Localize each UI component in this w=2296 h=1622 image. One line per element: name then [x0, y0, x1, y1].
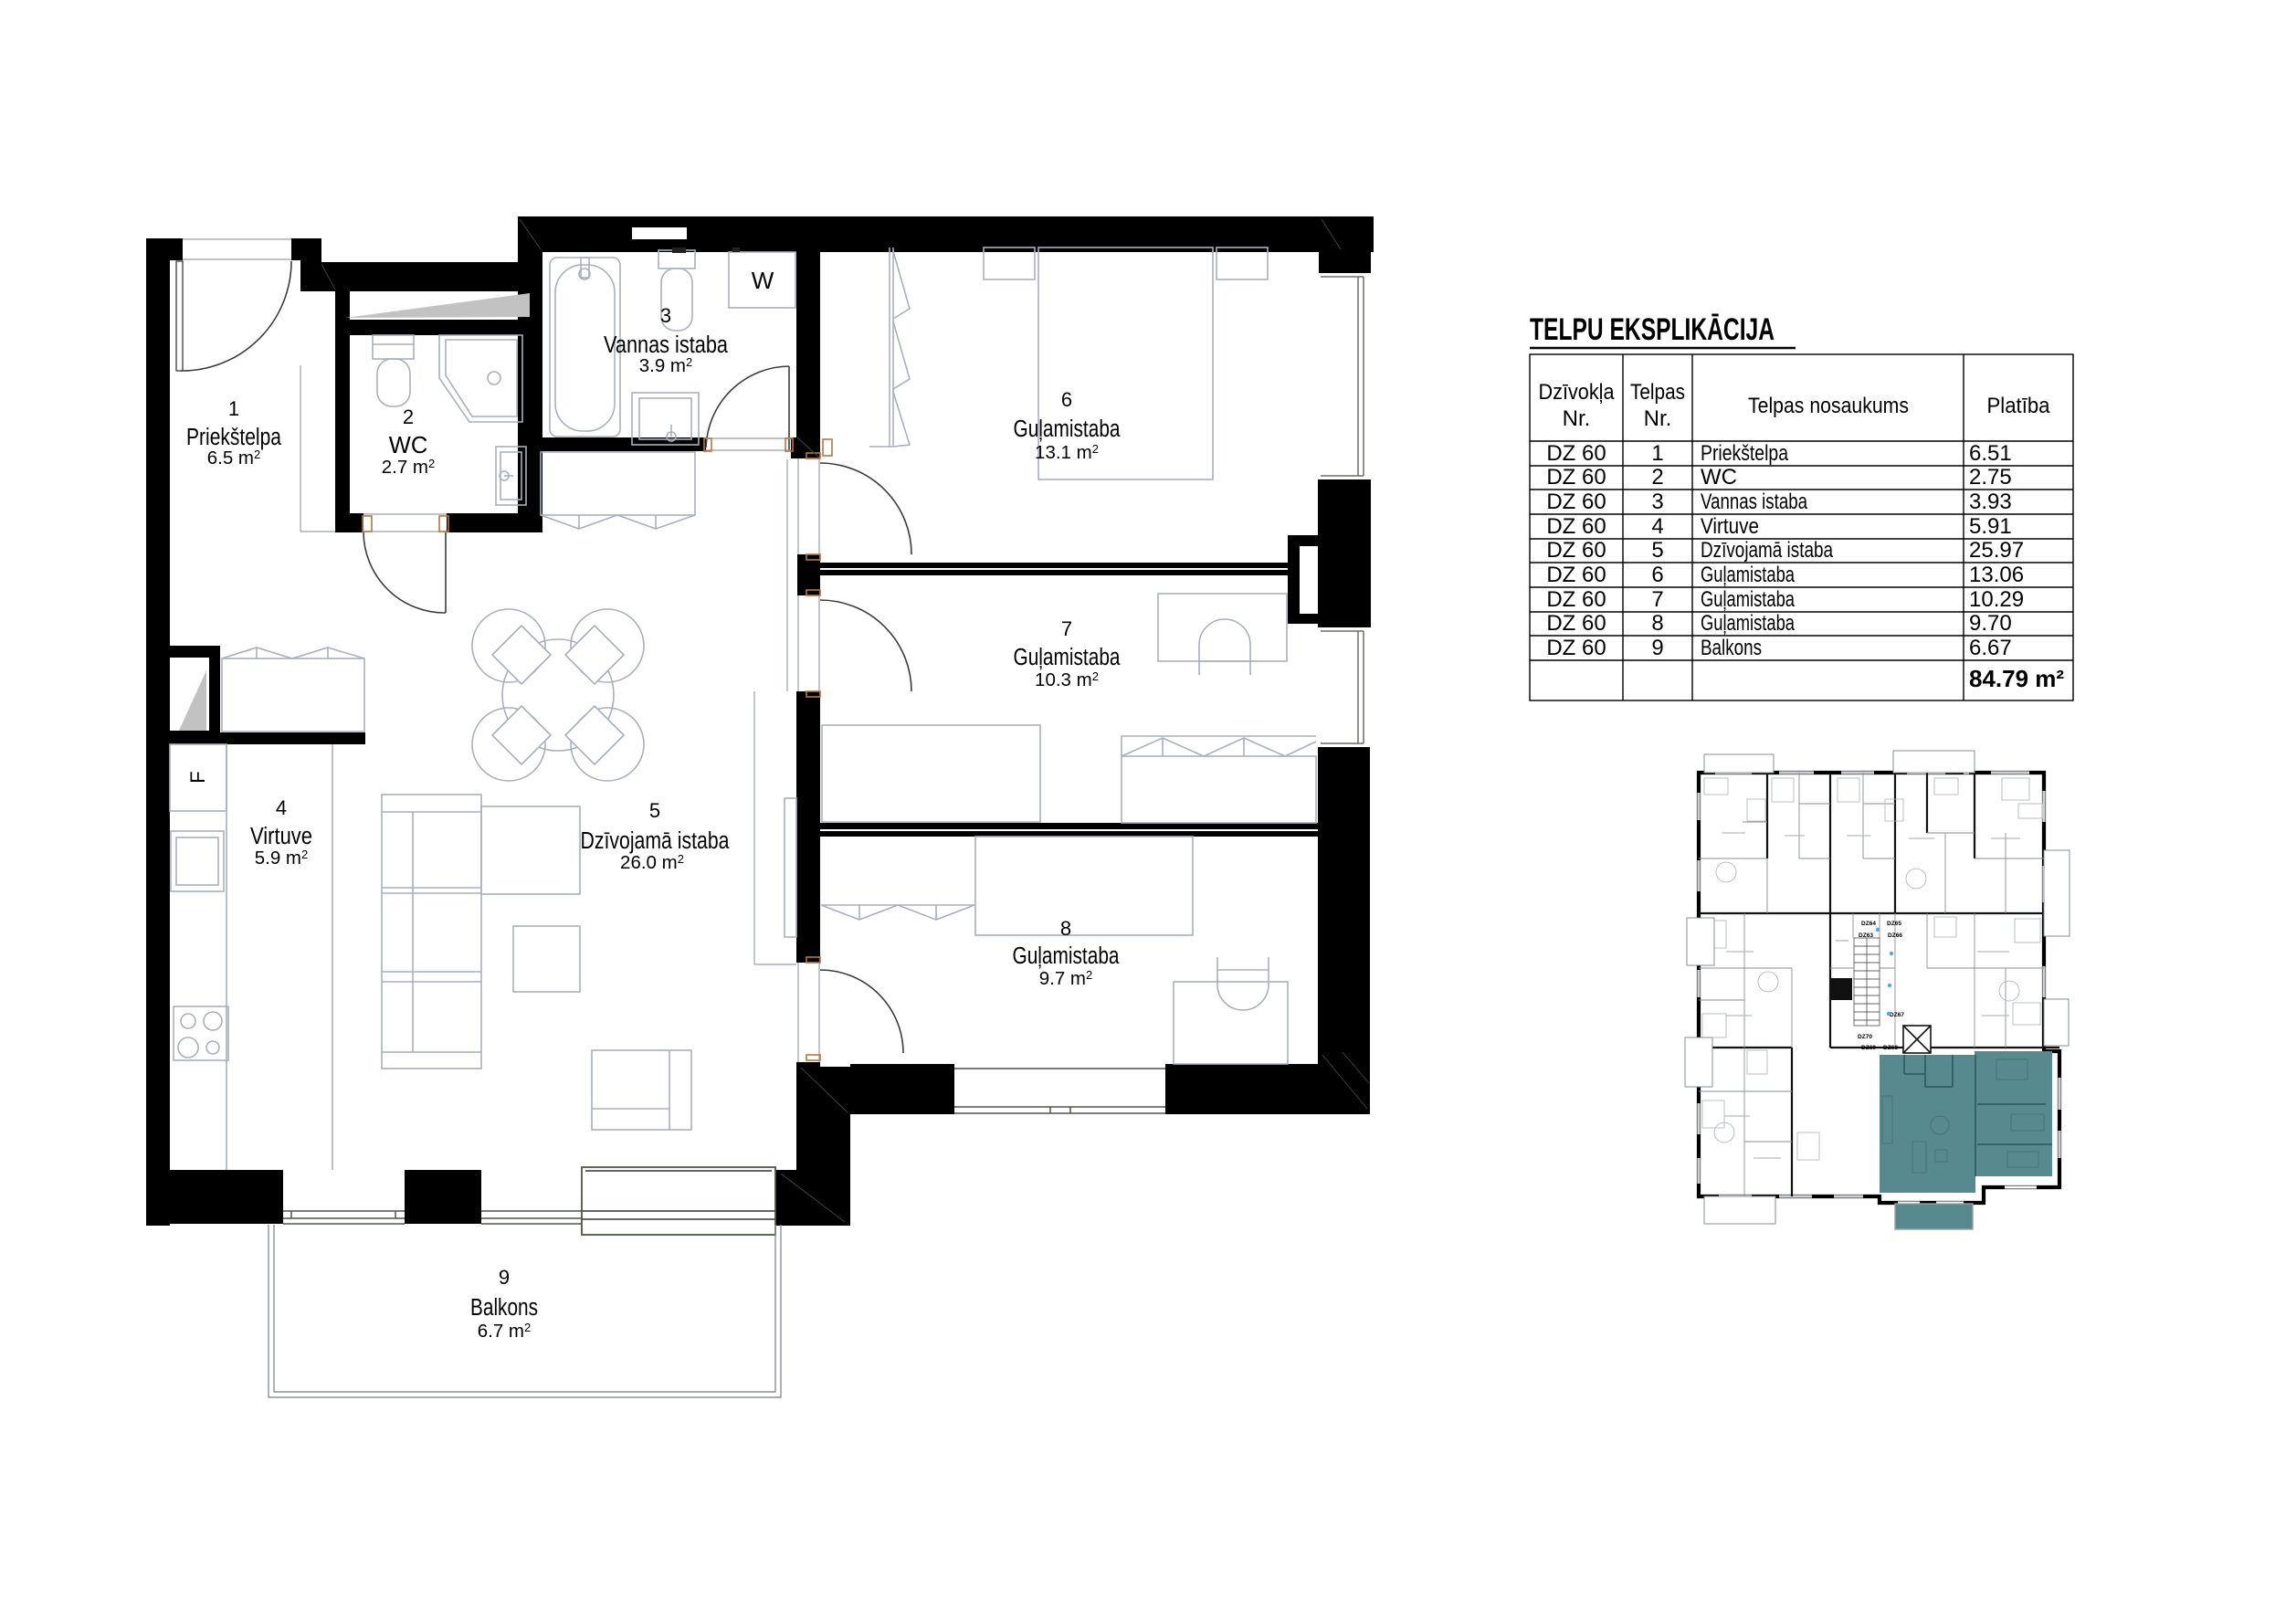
svg-text:3.93: 3.93: [1969, 490, 2012, 514]
svg-text:6.5 m2: 6.5 m2: [207, 448, 261, 469]
svg-text:DZ67: DZ67: [1890, 1012, 1904, 1018]
svg-text:6.67: 6.67: [1969, 636, 2012, 660]
svg-text:WC: WC: [1701, 465, 1737, 490]
svg-text:Priekštelpa: Priekštelpa: [1701, 441, 1789, 466]
svg-text:Guļamistaba: Guļamistaba: [1701, 587, 1795, 612]
svg-text:3.9 m2: 3.9 m2: [639, 355, 693, 376]
svg-text:3: 3: [1651, 490, 1663, 514]
svg-text:Dzīvokļa: Dzīvokļa: [1539, 380, 1616, 405]
svg-text:DZ 60: DZ 60: [1546, 490, 1606, 514]
svg-text:10.29: 10.29: [1969, 587, 2024, 612]
svg-text:DZ65: DZ65: [1887, 921, 1901, 927]
svg-text:25.97: 25.97: [1969, 538, 2024, 563]
svg-text:7: 7: [1061, 617, 1072, 640]
svg-text:6.51: 6.51: [1969, 441, 2012, 466]
svg-text:Vannas istaba: Vannas istaba: [1701, 490, 1808, 514]
svg-text:9.70: 9.70: [1969, 611, 2012, 636]
svg-text:Dzīvojamā istaba: Dzīvojamā istaba: [581, 828, 731, 854]
svg-text:DZ 60: DZ 60: [1546, 636, 1606, 660]
svg-text:5: 5: [649, 799, 660, 822]
svg-text:Priekštelpa: Priekštelpa: [186, 425, 282, 450]
svg-text:DZ64: DZ64: [1861, 921, 1876, 927]
svg-text:8: 8: [1651, 611, 1663, 636]
svg-text:Platība: Platība: [1987, 394, 2051, 418]
svg-text:2: 2: [1651, 465, 1663, 490]
svg-text:Nr.: Nr.: [1563, 406, 1591, 431]
svg-text:7: 7: [1651, 587, 1663, 612]
svg-text:Guļamistaba: Guļamistaba: [1014, 645, 1122, 670]
svg-text:Guļamistaba: Guļamistaba: [1701, 611, 1795, 636]
svg-text:6: 6: [1061, 388, 1072, 411]
svg-text:9: 9: [1651, 636, 1663, 660]
svg-text:10.3 m2: 10.3 m2: [1035, 669, 1099, 690]
svg-text:DZ63: DZ63: [1859, 932, 1873, 939]
svg-text:9.7 m2: 9.7 m2: [1039, 968, 1093, 989]
svg-text:5: 5: [1651, 538, 1663, 563]
svg-text:Telpas: Telpas: [1630, 380, 1685, 405]
svg-text:DZ68: DZ68: [1883, 1045, 1898, 1051]
svg-text:DZ 60: DZ 60: [1546, 465, 1606, 490]
svg-text:26.0 m2: 26.0 m2: [620, 852, 684, 873]
svg-text:DZ 60: DZ 60: [1546, 563, 1606, 587]
svg-text:2.75: 2.75: [1969, 465, 2012, 490]
svg-text:1: 1: [1651, 441, 1663, 466]
svg-text:Balkons: Balkons: [1701, 636, 1762, 660]
svg-text:13.06: 13.06: [1969, 563, 2024, 587]
svg-text:84.79 m²: 84.79 m²: [1969, 665, 2064, 692]
svg-text:Guļamistaba: Guļamistaba: [1013, 943, 1121, 969]
svg-text:WC: WC: [389, 433, 427, 458]
svg-text:W: W: [752, 267, 774, 294]
svg-text:5.91: 5.91: [1969, 514, 2012, 539]
svg-text:DZ 60: DZ 60: [1546, 538, 1606, 563]
svg-text:Virtuve: Virtuve: [1701, 514, 1759, 539]
svg-text:Telpas nosaukums: Telpas nosaukums: [1748, 394, 1909, 418]
svg-text:Virtuve: Virtuve: [250, 824, 312, 849]
svg-text:DZ70: DZ70: [1858, 1034, 1872, 1040]
svg-text:1: 1: [228, 397, 239, 420]
svg-text:Vannas istaba: Vannas istaba: [604, 332, 729, 358]
svg-text:F: F: [186, 771, 209, 783]
svg-text:5.9 m2: 5.9 m2: [255, 848, 309, 869]
svg-text:3: 3: [660, 304, 671, 327]
svg-text:2.7 m2: 2.7 m2: [382, 457, 436, 478]
svg-text:Guļamistaba: Guļamistaba: [1701, 563, 1795, 587]
svg-text:9: 9: [499, 1266, 510, 1289]
svg-text:DZ 60: DZ 60: [1546, 514, 1606, 539]
svg-text:2: 2: [403, 405, 414, 428]
svg-text:DZ 60: DZ 60: [1546, 441, 1606, 466]
svg-text:Balkons: Balkons: [470, 1295, 538, 1321]
svg-text:6.7 m2: 6.7 m2: [478, 1321, 532, 1342]
svg-text:Nr.: Nr.: [1644, 406, 1672, 431]
svg-text:Dzīvojamā istaba: Dzīvojamā istaba: [1701, 538, 1834, 563]
svg-text:DZ66: DZ66: [1888, 932, 1902, 939]
svg-text:TELPU EKSPLIKĀCIJA: TELPU EKSPLIKĀCIJA: [1530, 312, 1775, 347]
svg-text:13.1 m2: 13.1 m2: [1035, 442, 1099, 463]
svg-text:8: 8: [1060, 917, 1071, 940]
svg-text:4: 4: [276, 796, 287, 819]
svg-text:Guļamistaba: Guļamistaba: [1014, 416, 1122, 442]
svg-text:4: 4: [1651, 514, 1663, 539]
svg-text:DZ 60: DZ 60: [1546, 587, 1606, 612]
svg-text:6: 6: [1651, 563, 1663, 587]
svg-text:DZ 60: DZ 60: [1546, 611, 1606, 636]
svg-text:DZ69: DZ69: [1861, 1045, 1876, 1051]
